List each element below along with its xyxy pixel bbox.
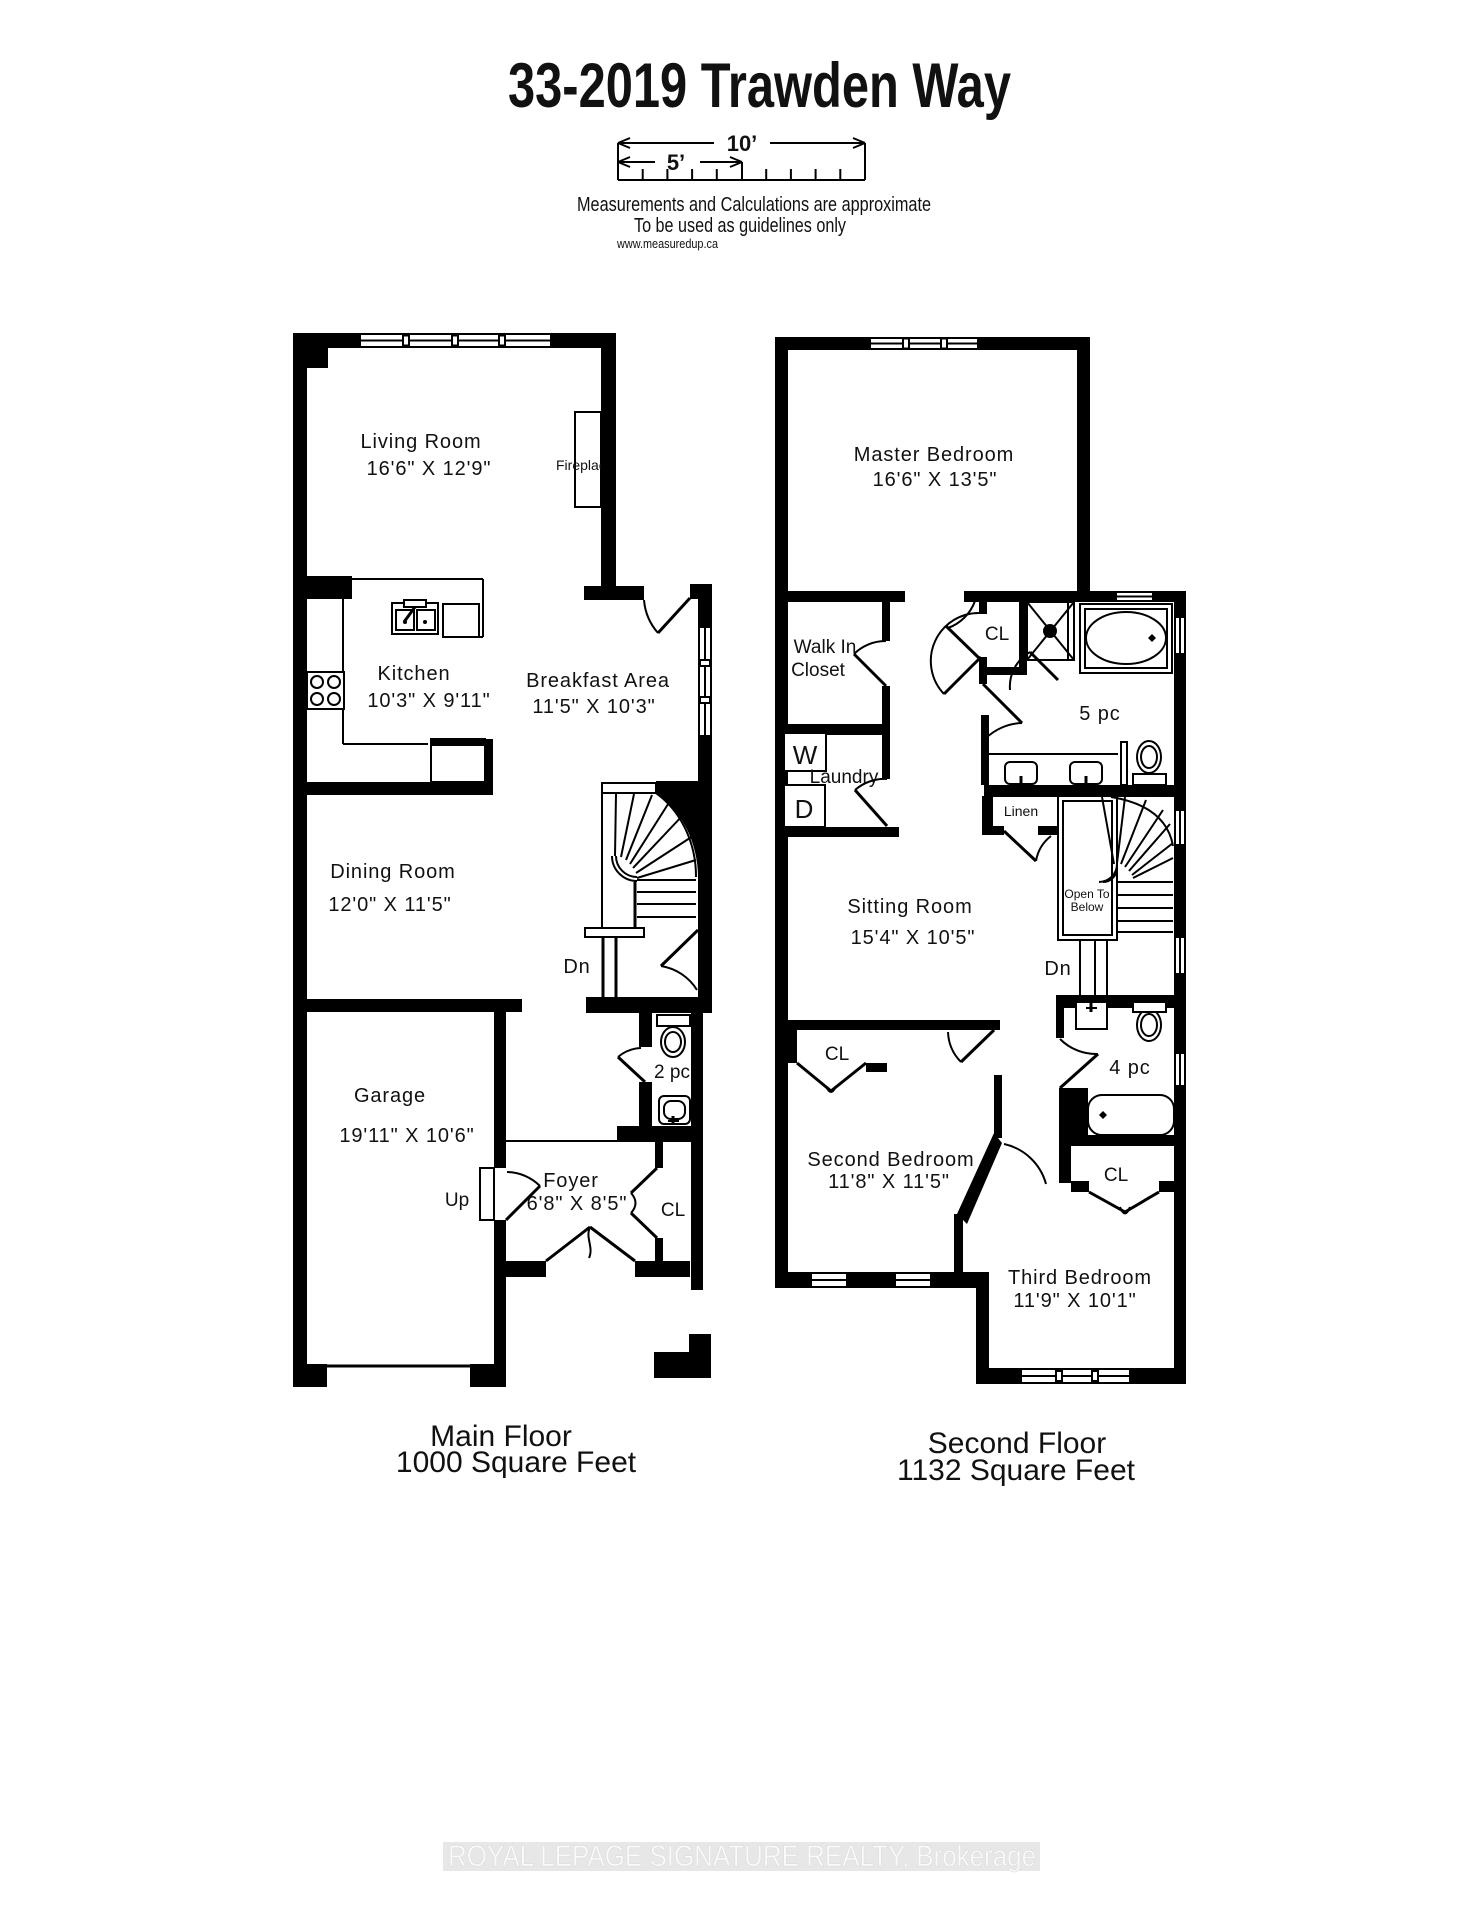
svg-text:4 pc: 4 pc [1109,1057,1150,1079]
svg-text:Below: Below [1071,900,1104,914]
svg-text:Dn: Dn [1044,958,1071,980]
svg-text:To be used as guidelines only: To be used as guidelines only [634,215,846,237]
svg-text:16'6" X 13'5": 16'6" X 13'5" [873,469,998,491]
svg-text:12'0" X 11'5": 12'0" X 11'5" [328,894,451,916]
svg-text:10’: 10’ [727,131,758,156]
svg-text:Garage: Garage [354,1085,426,1107]
svg-text:1000 Square Feet: 1000 Square Feet [396,1446,637,1479]
svg-text:6'8" X 8'5": 6'8" X 8'5" [527,1193,628,1215]
svg-text:Laundry: Laundry [810,767,879,788]
svg-text:Up: Up [445,1190,469,1211]
svg-text:5’: 5’ [667,150,685,175]
svg-text:Foyer: Foyer [543,1170,599,1192]
svg-text:5 pc: 5 pc [1079,703,1120,725]
svg-text:1132 Square Feet: 1132 Square Feet [897,1454,1136,1487]
svg-text:Breakfast Area: Breakfast Area [526,670,670,692]
svg-text:19'11" X 10'6": 19'11" X 10'6" [339,1125,474,1147]
svg-text:Open To: Open To [1064,887,1109,901]
svg-text:CL: CL [1104,1165,1128,1186]
svg-text:CL: CL [661,1200,685,1221]
svg-text:10'3" X 9'11": 10'3" X 9'11" [367,690,490,712]
svg-text:W: W [793,740,818,770]
svg-text:11'8" X 11'5": 11'8" X 11'5" [828,1171,950,1193]
svg-text:Walk In: Walk In [794,637,857,658]
svg-text:Linen: Linen [1004,803,1038,819]
svg-text:11'9" X 10'1": 11'9" X 10'1" [1013,1290,1136,1312]
svg-text:Living Room: Living Room [360,431,481,453]
svg-text:Sitting Room: Sitting Room [847,896,972,918]
svg-text:Third Bedroom: Third Bedroom [1008,1267,1152,1289]
svg-text:CL: CL [985,624,1009,645]
svg-text:16'6" X 12'9": 16'6" X 12'9" [367,458,492,480]
svg-text:Closet: Closet [791,660,846,681]
svg-text:Kitchen: Kitchen [377,663,450,685]
svg-text:11'5" X 10'3": 11'5" X 10'3" [532,696,655,718]
svg-text:Measurements and Calculations: Measurements and Calculations are approx… [577,194,931,216]
svg-text:www.measuredup.ca: www.measuredup.ca [616,236,718,251]
svg-text:ROYAL LEPAGE SIGNATURE REALTY,: ROYAL LEPAGE SIGNATURE REALTY, Brokerage [448,1840,1036,1873]
svg-text:Master Bedroom: Master Bedroom [854,444,1014,466]
svg-text:Dn: Dn [563,956,590,978]
svg-text:2 pc: 2 pc [654,1062,690,1083]
svg-text:CL: CL [825,1044,849,1065]
svg-text:33-2019 Trawden Way: 33-2019 Trawden Way [508,51,1011,121]
svg-text:Second Bedroom: Second Bedroom [807,1149,974,1171]
svg-text:D: D [795,794,814,824]
svg-text:15'4" X 10'5": 15'4" X 10'5" [851,927,976,949]
svg-text:Dining Room: Dining Room [330,861,456,883]
